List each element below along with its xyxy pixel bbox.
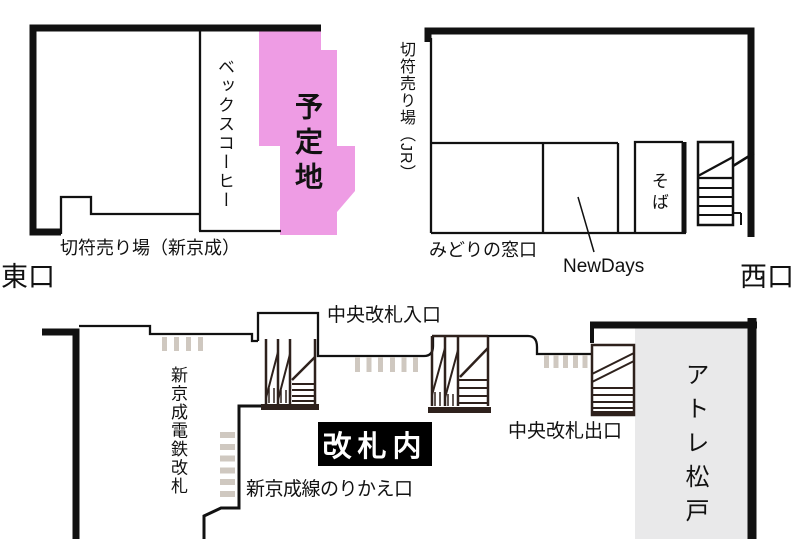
midori-window-label: みどりの窓口 [429,241,537,259]
staircase-central-entrance [261,339,319,407]
station-floor-map: ベックスコーヒー 予定地 切符売り場（新京成） 東口 切符売り場（JR） みどり… [0,0,793,539]
inside-gates-label: 改札内 [322,423,427,465]
ticket-office-shinkeisei-label: 切符売り場（新京成） [60,239,240,257]
ticket-gates-central-entrance [355,357,418,372]
central-gate-exit-label: 中央改札出口 [508,422,622,441]
becks-coffee-label: ベックスコーヒー [216,58,233,210]
planned-site-label: 予定地 [293,92,321,197]
shinkeisei-transfer-label: 新京成線のりかえ口 [246,480,413,499]
staircase-central-exit [592,345,634,415]
soba-label: そば [650,172,667,214]
ticket-office-jr-label: 切符売り場（JR） [397,41,413,182]
central-gate-entrance-label: 中央改札入口 [327,306,441,325]
staircase-inside-gates [428,336,491,410]
east-exit-label: 東口 [1,264,55,291]
staircase-west-exit [698,142,754,225]
atre-matsudo-label: アトレ松戸 [682,362,706,532]
inside-gates-badge: 改札内 [318,422,432,466]
west-exit-label: 西口 [740,264,793,291]
ticket-gates-shinkeisei-transfer [220,432,235,498]
ticket-gates-shinkeisei-entrance [162,337,203,351]
shinkeisei-railway-gate-label: 新京成電鉄改札 [169,366,186,496]
ticket-gates-central-exit [544,355,588,368]
newdays-label: NewDays [563,257,644,276]
